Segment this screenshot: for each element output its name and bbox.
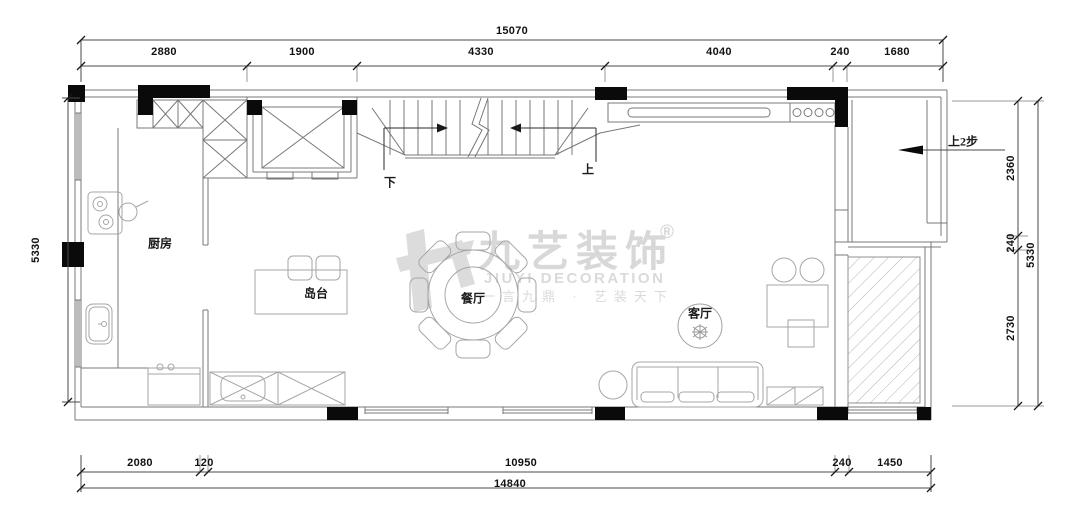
walls [75, 90, 947, 420]
plan-drawing [0, 0, 1080, 529]
kitchen-cabinet [148, 364, 200, 405]
dim-right-total: 5330 [1025, 242, 1037, 268]
hatched-steps-area [848, 257, 920, 403]
desk-set [767, 258, 828, 347]
dim-bottom-seg-3: 10950 [505, 457, 537, 469]
furniture [86, 192, 828, 407]
plant-icon [692, 324, 708, 340]
island-counter [255, 256, 347, 314]
stairs-down-label: 下 [384, 174, 396, 191]
dim-bottom-seg-1: 2080 [127, 457, 153, 469]
dim-top-seg-6: 1680 [884, 46, 910, 58]
dim-right-seg-2: 240 [1005, 233, 1017, 252]
dim-bottom-total: 14840 [494, 478, 526, 490]
room-label-living: 客厅 [688, 305, 712, 322]
stairs-up-label: 上 [582, 161, 594, 178]
dim-right-seg-1: 2360 [1005, 155, 1017, 181]
vanity-cabinet [210, 372, 345, 405]
dim-bottom-seg-4: 240 [832, 457, 851, 469]
dim-top-total: 15070 [496, 25, 528, 37]
columns [62, 85, 931, 420]
dim-bottom-seg-5: 1450 [877, 457, 903, 469]
kitchen-sink [86, 304, 112, 344]
dim-top-seg-5: 240 [830, 46, 849, 58]
side-table [599, 371, 627, 399]
room-label-dining: 餐厅 [461, 290, 485, 307]
dim-top-seg-4: 4040 [706, 46, 732, 58]
dim-top-seg-1: 2880 [151, 46, 177, 58]
dim-bottom-seg-2: 120 [194, 457, 213, 469]
dim-top-seg-3: 4330 [468, 46, 494, 58]
low-cabinet [767, 387, 823, 405]
sofa [632, 362, 763, 407]
room-label-kitchen: 厨房 [148, 235, 172, 252]
dim-right-seg-3: 2730 [1005, 315, 1017, 341]
floor-plan-canvas: 九艺装饰 ® JIUYI DECORATION 一言九鼎 · 艺装天下 [0, 0, 1080, 529]
dim-top-seg-2: 1900 [289, 46, 315, 58]
entry-steps-note: 上2步 [948, 133, 978, 150]
room-label-island: 岛台 [304, 285, 328, 302]
dim-left-total: 5330 [30, 237, 42, 263]
